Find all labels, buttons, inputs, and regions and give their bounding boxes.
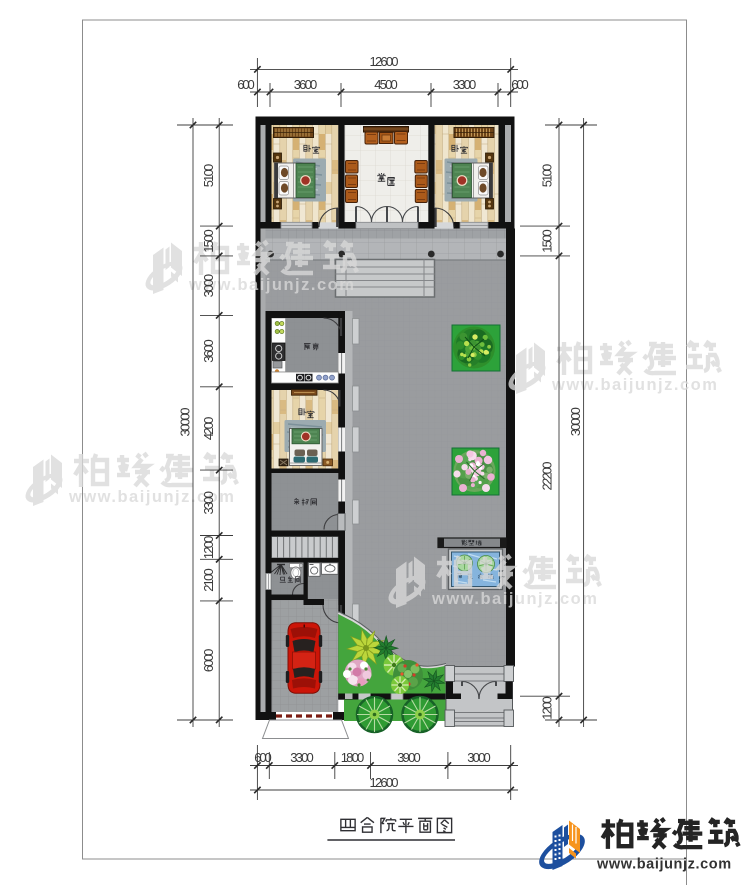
svg-text:3600: 3600	[294, 77, 318, 92]
svg-text:1800: 1800	[341, 750, 365, 765]
svg-text:30000: 30000	[568, 407, 583, 436]
svg-text:1500: 1500	[201, 229, 216, 253]
svg-text:3000: 3000	[201, 274, 216, 298]
svg-text:600: 600	[511, 77, 529, 92]
svg-text:12600: 12600	[370, 775, 399, 790]
svg-text:5100: 5100	[540, 164, 555, 188]
svg-text:3600: 3600	[201, 339, 216, 363]
svg-text:5100: 5100	[201, 164, 216, 188]
svg-text:1200: 1200	[540, 696, 555, 720]
svg-text:3300: 3300	[453, 77, 477, 92]
svg-text:6000: 6000	[201, 649, 216, 673]
svg-text:www.baijunjz.com: www.baijunjz.com	[596, 857, 732, 873]
svg-text:12600: 12600	[370, 54, 399, 69]
svg-text:2100: 2100	[201, 568, 216, 592]
svg-text:3300: 3300	[290, 750, 314, 765]
svg-text:4500: 4500	[374, 77, 398, 92]
svg-text:600: 600	[254, 750, 272, 765]
svg-text:1200: 1200	[201, 536, 216, 560]
svg-text:3000: 3000	[467, 750, 491, 765]
svg-text:600: 600	[237, 77, 255, 92]
svg-text:3900: 3900	[397, 750, 421, 765]
svg-text:4200: 4200	[201, 417, 216, 441]
svg-text:30000: 30000	[178, 408, 193, 437]
svg-text:1500: 1500	[540, 229, 555, 253]
svg-text:3300: 3300	[201, 491, 216, 515]
svg-text:22200: 22200	[540, 462, 555, 491]
